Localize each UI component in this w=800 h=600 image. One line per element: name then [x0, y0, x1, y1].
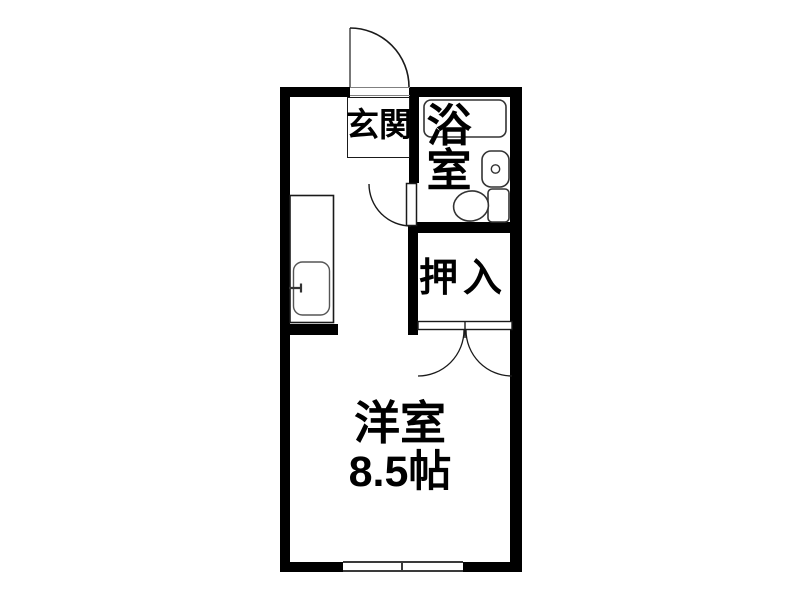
wall-kitchen-stub — [288, 324, 338, 335]
bathroom-door — [369, 184, 417, 227]
genkan-label: 玄関 — [344, 108, 414, 143]
bathroom-label-char-1: 浴 — [424, 103, 474, 148]
kitchen-sink — [294, 262, 330, 315]
wall-right — [510, 87, 522, 572]
entrance-threshold-line-top — [350, 87, 410, 88]
bathroom-label-char-2: 室 — [424, 148, 474, 193]
main-room-size-label: 8.5帖 — [338, 450, 462, 495]
entrance-door — [350, 28, 409, 87]
sliding-window — [343, 561, 463, 572]
window-center-tick — [401, 561, 403, 572]
kitchen-counter — [290, 196, 334, 323]
main-room-label: 洋室 — [340, 399, 460, 447]
wall-top-right-segment — [409, 87, 522, 97]
closet-double-doors — [418, 322, 512, 377]
bathroom-label: 浴 室 — [424, 103, 474, 193]
closet-label: 押入 — [414, 259, 512, 300]
wall-bottom-left-segment — [280, 562, 343, 572]
kitchen-faucet — [289, 284, 301, 293]
wash-basin — [482, 151, 509, 187]
fixtures-layer — [0, 0, 800, 600]
wall-bathroom-bottom — [409, 222, 510, 233]
wall-top-left-segment — [280, 87, 350, 97]
floor-plan: 玄関 浴 室 押入 洋室 8.5帖 — [0, 0, 800, 600]
wall-bottom-right-segment — [463, 562, 522, 572]
entrance-threshold-line-bottom — [350, 95, 410, 96]
